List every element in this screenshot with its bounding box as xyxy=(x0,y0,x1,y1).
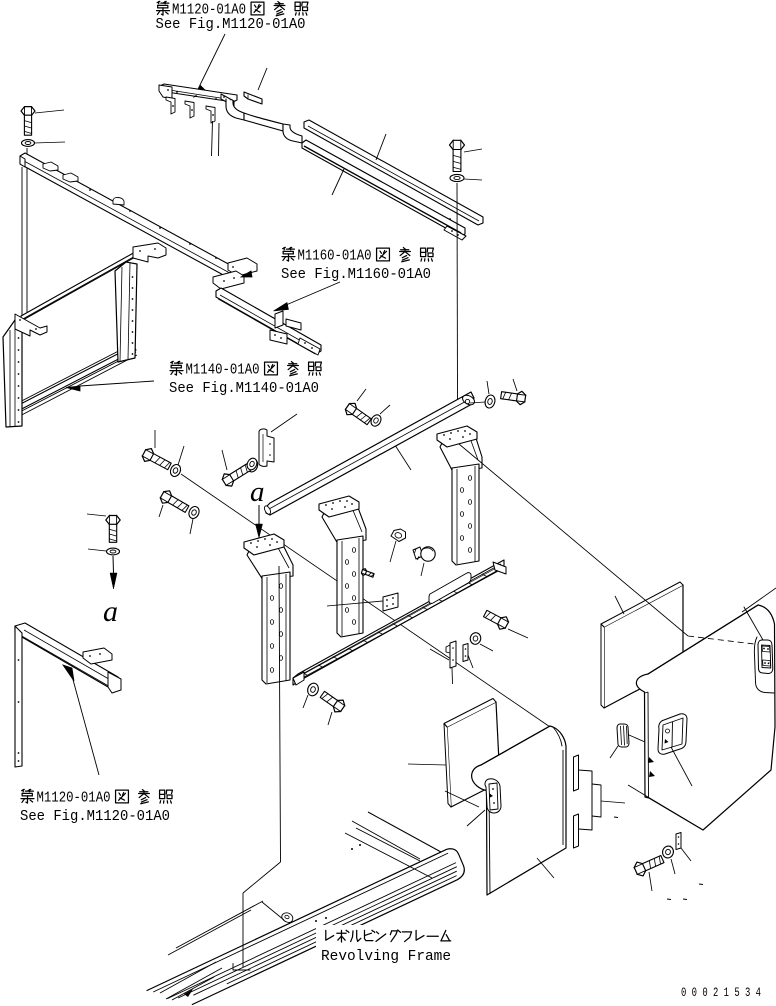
svg-text:M1160-01A0: M1160-01A0 xyxy=(298,248,372,265)
svg-text:a: a xyxy=(250,476,265,508)
svg-text:M1140-01A0: M1140-01A0 xyxy=(186,362,260,379)
svg-text:a: a xyxy=(103,595,118,628)
svg-text:See Fig.M1120-01A0: See Fig.M1120-01A0 xyxy=(156,16,306,33)
svg-text:0 0 0 2 1 5 3 4: 0 0 0 2 1 5 3 4 xyxy=(681,986,761,1000)
svg-text:See Fig.M1140-01A0: See Fig.M1140-01A0 xyxy=(169,380,319,397)
svg-text:M1120-01A0: M1120-01A0 xyxy=(37,790,111,807)
svg-text:See Fig.M1120-01A0: See Fig.M1120-01A0 xyxy=(20,808,170,825)
svg-text:See Fig.M1160-01A0: See Fig.M1160-01A0 xyxy=(281,266,431,283)
svg-text:Revolving Frame: Revolving Frame xyxy=(321,948,451,965)
